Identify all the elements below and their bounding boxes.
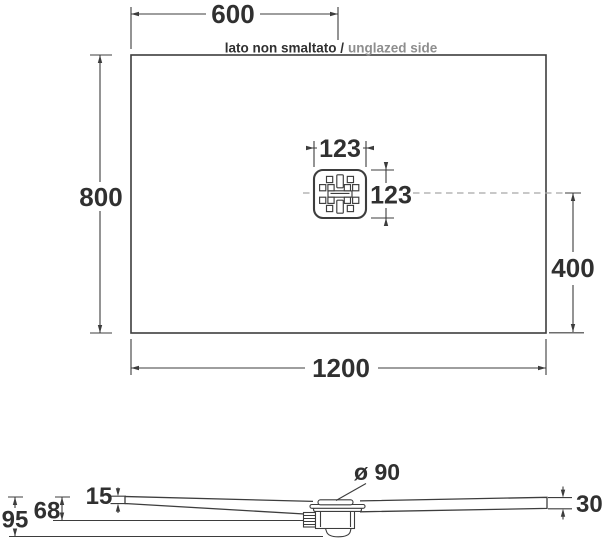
dim-1200-value: 1200 [312,353,370,383]
top-view: 600 lato non smaltato /unglazed side 800… [79,0,594,383]
dim-diameter-90: ø 90 [336,459,400,501]
dim-400: 400 [549,193,595,333]
unglazed-side-label: lato non smaltato /unglazed side [225,41,438,56]
dim-400-value: 400 [551,253,594,283]
shower-tray-technical-drawing: 600 lato non smaltato /unglazed side 800… [0,0,602,546]
drawing-canvas: 600 lato non smaltato /unglazed side 800… [0,0,602,546]
drain-cover [314,170,366,218]
dim-15-value: 15 [86,483,113,510]
dim-15: 15 [86,483,126,513]
dim-123-vertical-value: 123 [370,182,412,210]
dim-800: 800 [79,55,122,333]
dim-600-value: 600 [211,0,254,29]
dim-diameter-90-value: ø 90 [354,459,400,485]
drain-siphon [304,500,366,537]
dim-68-value: 68 [34,498,61,525]
dim-30-value: 30 [576,491,602,518]
label-english: unglazed side [348,41,438,56]
tray-profile-right [360,497,547,512]
dim-123-horizontal-value: 123 [319,135,361,163]
side-view: ø 90 15 68 95 30 [2,459,602,537]
siphon-bottom-cap [326,529,352,537]
siphon-outlet-ribs [304,513,316,528]
dim-95-value: 95 [2,507,29,534]
tray-profile-left [125,497,313,515]
dim-30: 30 [548,487,602,520]
drain-flange [310,500,365,512]
label-italian: lato non smaltato / [225,41,345,56]
dim-1200: 1200 [131,339,546,383]
dim-95: 95 [2,497,29,537]
dim-800-value: 800 [79,182,122,212]
